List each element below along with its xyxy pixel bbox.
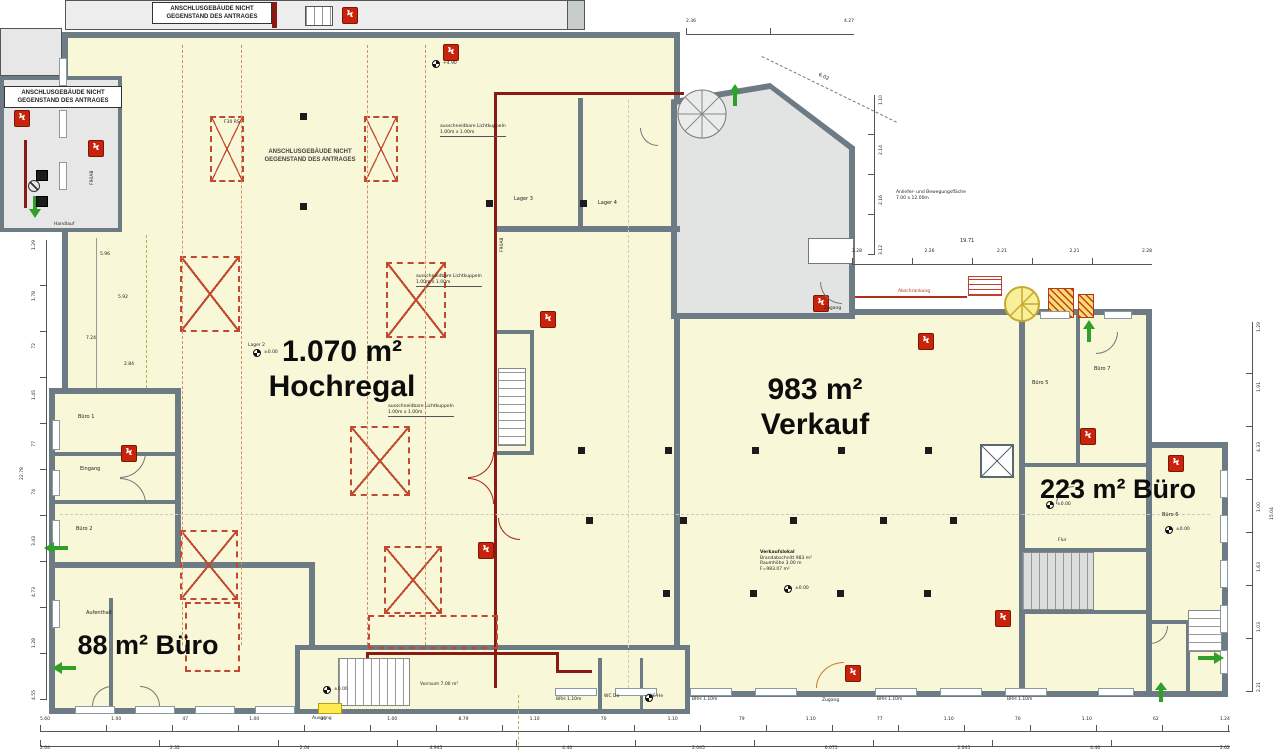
firewall-center-vertical xyxy=(494,92,497,688)
rack-guide-line xyxy=(241,45,242,645)
room-label-aufenthalt: Aufenthalt xyxy=(86,610,112,616)
column-marker xyxy=(880,517,887,524)
label-zugang: Zugang xyxy=(822,698,839,704)
dim-line xyxy=(852,258,1152,265)
wall-segment xyxy=(494,451,534,455)
label-zugang: Zugang xyxy=(824,306,841,312)
fire-extinguisher-icon: Ϟ xyxy=(540,311,556,328)
firewall-top-horizontal xyxy=(494,92,684,95)
dim-label: 1.00 xyxy=(1258,502,1263,512)
stairs-right-wing xyxy=(1022,552,1094,610)
wall-segment xyxy=(494,330,534,334)
exit-door-highlight xyxy=(318,703,342,714)
wc-room-topright xyxy=(808,238,854,264)
rack-outline xyxy=(384,546,442,614)
wall-segment xyxy=(640,658,643,710)
note-lichtkuppeln: ausschneidbare Lichtkuppeln 1.00m x 1.00… xyxy=(416,274,482,287)
rack-outline xyxy=(210,116,244,182)
dim-label: 1.63 xyxy=(1258,562,1263,572)
dim-line xyxy=(868,95,875,255)
room-label-wc1: WC Da xyxy=(604,694,619,700)
note-line: F=983.07 m² xyxy=(760,567,790,572)
exit-arrow-up-icon xyxy=(729,84,741,106)
annex-note-line2: GEGENSTAND DES ANTRAGES xyxy=(17,98,108,104)
firewall-left-segment xyxy=(24,140,27,208)
note-line: 7.00 x 12.00m xyxy=(896,196,929,201)
annex-note-line2: GEGENSTAND DES ANTRAGES xyxy=(264,157,355,163)
dim-label: 2.16 xyxy=(880,195,885,205)
window xyxy=(755,688,797,696)
dim-label: 5.92 xyxy=(118,295,128,301)
room-label-buero2: Büro 2 xyxy=(76,526,92,532)
spiral-stair-yellow-icon xyxy=(1002,284,1042,324)
label-brh: BRH 1.10m xyxy=(1007,697,1032,703)
dim-labels-right: 1.291.914.331.001.631.032.21 xyxy=(1255,322,1265,692)
window xyxy=(1005,688,1047,696)
label-hochregal-area: 1.070 m² xyxy=(269,334,416,369)
note-lichtkuppeln: ausschneidbare Lichtkuppeln 1.00m x 1.00… xyxy=(440,124,506,137)
fire-extinguisher-icon: Ϟ xyxy=(478,542,494,559)
stairs-bottom-right xyxy=(1188,610,1222,652)
dim-line xyxy=(686,28,854,35)
fire-extinguisher-icon: Ϟ xyxy=(1080,428,1096,445)
window xyxy=(1098,688,1134,696)
fire-extinguisher-icon: Ϟ xyxy=(845,665,861,682)
dim-label: 2.84 xyxy=(124,362,134,368)
column-marker xyxy=(578,447,585,454)
firewall-vorraum-h xyxy=(366,652,558,655)
hall-verkauf xyxy=(674,309,1025,697)
label-brh: BRH 1.10m xyxy=(556,697,581,703)
dim-label: 47 xyxy=(182,718,188,723)
desk-symbol xyxy=(36,196,48,207)
dim-label-slant: 6.02 xyxy=(817,72,830,83)
label-verkauf: 983 m² Verkauf xyxy=(761,372,869,443)
column-marker xyxy=(663,590,670,597)
rack-outline xyxy=(350,426,410,496)
dim-label: 70 xyxy=(601,718,607,723)
dim-labels-left: 1.291.78721.4577743.434.731.284.55 xyxy=(30,240,40,700)
wall-segment xyxy=(55,500,178,504)
window xyxy=(59,110,67,138)
dim-label: 2.045 xyxy=(692,747,705,752)
dim-label: 2.21 xyxy=(1258,682,1263,692)
window xyxy=(690,688,732,696)
wall-segment xyxy=(1019,463,1149,467)
rack-outline xyxy=(180,256,240,332)
dim-label: 1.78 xyxy=(33,291,38,301)
dim-label: 2.04 xyxy=(300,747,310,752)
dim-label: 72 xyxy=(33,343,38,349)
rack-outline xyxy=(180,530,238,600)
room-label-eingang: Eingang xyxy=(80,466,100,472)
dim-label: 1.10 xyxy=(1082,718,1092,723)
window xyxy=(195,706,235,714)
dim-label: 4.73 xyxy=(33,587,38,597)
column-marker xyxy=(680,517,687,524)
exit-arrow-up-icon xyxy=(1155,682,1167,702)
dim-line xyxy=(40,740,1230,747)
dim-line xyxy=(40,240,47,700)
dim-line xyxy=(96,238,97,388)
rack-guide-line xyxy=(182,45,183,645)
dim-label: 79 xyxy=(739,718,745,723)
dim-line xyxy=(40,725,1230,732)
note-line: Raumhöhe 3.00 m xyxy=(760,561,802,566)
exit-arrow-right-icon xyxy=(1198,652,1224,664)
dim-label: 2.04 xyxy=(40,747,50,752)
neighbour-room-topleft xyxy=(0,28,62,76)
dim-total-left: 22.78 xyxy=(20,467,26,480)
section-line xyxy=(146,235,147,388)
dim-label: 5.96 xyxy=(100,252,110,258)
dim-label: 1.29 xyxy=(1258,322,1263,332)
dim-label: 2.045 xyxy=(957,747,970,752)
wall-segment xyxy=(494,226,680,232)
dim-labels-trtop: 2.364.27 xyxy=(686,20,854,25)
label-firewall-class: F90AB xyxy=(500,238,506,252)
note-line: 1.00m x 1.00m xyxy=(388,410,422,415)
fire-extinguisher-icon: Ϟ xyxy=(443,44,459,61)
dim-line xyxy=(1246,322,1253,692)
room-label-buero1: Büro 1 xyxy=(78,414,94,420)
dim-label: 4.27 xyxy=(844,20,854,25)
dim-label: 2.32 xyxy=(170,747,180,752)
note-anlieferung: Anliefer- und Bewegungsfläche 7.00 x 12.… xyxy=(896,190,966,201)
column-marker xyxy=(486,200,493,207)
dim-label: 74 xyxy=(33,489,38,495)
level-marker xyxy=(253,349,261,357)
window xyxy=(59,162,67,190)
column-marker xyxy=(838,447,845,454)
dim-label: 3.12 xyxy=(880,245,885,255)
note-verkaufslokal: Verkaufslokal Brandabschnitt 983 m² Raum… xyxy=(760,550,812,573)
dim-label: 2.21 xyxy=(997,250,1007,255)
stairs-top-strip xyxy=(305,6,333,26)
barrier-line xyxy=(855,296,967,298)
label-firewall-class: F30 RS xyxy=(224,120,240,126)
label-verkauf-area: 983 m² xyxy=(761,372,869,407)
window xyxy=(59,58,67,86)
dim-label: 1.10 xyxy=(944,718,954,723)
annex-note-hall: ANSCHLUSGEBÄUDE NICHT GEGENSTAND DES ANT… xyxy=(258,148,362,164)
note-line: ausschneidbare Lichtkuppeln xyxy=(416,274,482,279)
level-marker xyxy=(323,686,331,694)
dim-label: 1.00 xyxy=(387,718,397,723)
note-line: 1.00m x 1.00m xyxy=(416,280,450,285)
window xyxy=(52,600,60,628)
column-marker xyxy=(750,590,757,597)
room-label-vorraum: Vorraum 7.00 m² xyxy=(420,682,458,688)
annex-note-line1: ANSCHLUSGEBÄUDE NICHT xyxy=(170,6,253,12)
note-lichtkuppeln: ausschneidbare Lichtkuppeln 1.00m x 1.00… xyxy=(388,404,454,417)
dim-labels-topright: 2.282.262.212.212.28 xyxy=(852,250,1152,255)
label-hochregal-name: Hochregal xyxy=(269,369,416,404)
window xyxy=(1220,605,1228,633)
column-marker xyxy=(586,517,593,524)
wall-segment xyxy=(598,658,602,710)
rack-outline xyxy=(368,615,498,649)
column-marker xyxy=(665,447,672,454)
room-label-lager2: Lager 2 xyxy=(248,343,265,349)
dim-label: 1.10 xyxy=(806,718,816,723)
dim-label: 8.79 xyxy=(458,718,468,723)
window xyxy=(1220,515,1228,543)
level-marker xyxy=(1046,501,1054,509)
dim-label: 1.03 xyxy=(1258,622,1263,632)
dim-label: 3.43 xyxy=(33,536,38,546)
dim-total-right: 15.04 xyxy=(1270,507,1276,520)
dim-label: 4.46 xyxy=(1090,747,1100,752)
grid-line xyxy=(628,100,629,688)
note-line: 1.00m x 1.00m xyxy=(440,130,474,135)
dim-label: 1.24 xyxy=(1220,718,1230,723)
window xyxy=(875,688,917,696)
dim-label: 6.075 xyxy=(825,747,838,752)
dim-label: 2.36 xyxy=(686,20,696,25)
exit-arrow-up-icon xyxy=(1083,320,1095,342)
dim-label: 05 xyxy=(320,718,326,723)
fire-extinguisher-icon: Ϟ xyxy=(918,333,934,350)
level-label: ±0.00 xyxy=(795,586,809,592)
dim-labels-bottom-1: 5.601.00471.00051.008.791.10701.10791.10… xyxy=(40,718,1230,723)
label-brh: BRH 1.10m xyxy=(692,697,717,703)
dim-label: 1.45 xyxy=(33,390,38,400)
dim-label: 1.29 xyxy=(33,240,38,250)
dim-label: 4.55 xyxy=(33,690,38,700)
annex-note-left: ANSCHLUSGEBÄUDE NICHT GEGENSTAND DES ANT… xyxy=(4,86,122,108)
label-firewall-class: F90AB xyxy=(90,171,96,185)
dim-label: 2.14 xyxy=(880,145,885,155)
fire-extinguisher-icon: Ϟ xyxy=(88,140,104,157)
dim-label: 77 xyxy=(33,441,38,447)
window xyxy=(1104,311,1132,319)
wall-segment xyxy=(1019,610,1149,614)
level-label: ±0.00 xyxy=(1057,502,1071,508)
exterior-hatch-area xyxy=(1078,294,1094,318)
window xyxy=(75,706,115,714)
firewall-vorraum-h2 xyxy=(556,670,592,673)
dim-total-topright: 19.71 xyxy=(960,238,974,244)
note-line: Anliefer- und Bewegungsfläche xyxy=(896,190,966,195)
note-line: Verkaufslokal xyxy=(760,550,795,555)
label-handlauf: Handlauf xyxy=(54,222,74,228)
dim-label: 1.10 xyxy=(668,718,678,723)
dim-label: 70 xyxy=(1015,718,1021,723)
level-marker xyxy=(432,60,440,68)
level-label: ±0.00 xyxy=(1176,527,1190,533)
room-label-flur: Flur xyxy=(1058,538,1067,544)
window xyxy=(1220,470,1228,498)
dim-label: 4.40 xyxy=(562,747,572,752)
room-label-lager4: Lager 4 xyxy=(598,200,617,206)
dim-label: 4.33 xyxy=(1258,442,1263,452)
window xyxy=(255,706,295,714)
column-marker xyxy=(752,447,759,454)
level-marker xyxy=(1165,526,1173,534)
desk-symbol xyxy=(36,170,48,181)
room-label-buero6: Büro 6 xyxy=(1162,512,1178,518)
column-marker xyxy=(837,590,844,597)
grid-line xyxy=(60,514,1210,515)
column-marker xyxy=(580,200,587,207)
fire-extinguisher-icon: Ϟ xyxy=(342,7,358,24)
label-hochregal: 1.070 m² Hochregal xyxy=(269,334,416,405)
rack-outline xyxy=(364,116,398,182)
wall-segment xyxy=(578,98,583,230)
dim-label: 1.10 xyxy=(880,95,885,105)
column-marker xyxy=(950,517,957,524)
column-marker xyxy=(300,113,307,120)
room-label-lager3: Lager 3 xyxy=(514,196,533,202)
floor-plan-canvas: ANSCHLUSGEBÄUDE NICHT GEGENSTAND DES ANT… xyxy=(0,0,1280,753)
dim-label: 1.28 xyxy=(33,638,38,648)
dim-label: 2.21 xyxy=(1069,250,1079,255)
window xyxy=(555,688,597,696)
dim-label: 62 xyxy=(1153,718,1159,723)
window xyxy=(135,706,175,714)
fire-extinguisher-icon: Ϟ xyxy=(995,610,1011,627)
firewall-top-strip-bar xyxy=(272,2,277,28)
dim-label: 4.945 xyxy=(429,747,442,752)
exit-arrow-left-icon xyxy=(44,542,68,554)
fire-extinguisher-icon: Ϟ xyxy=(14,110,30,127)
dim-label: 2.26 xyxy=(924,250,934,255)
level-label: ±0.00 xyxy=(264,350,278,356)
wall-segment xyxy=(530,330,534,455)
dim-labels-bottom-2: 2.042.322.044.9454.402.0456.0752.0454.46… xyxy=(40,747,1230,752)
note-line: Brandabschnitt 983 m² xyxy=(760,556,812,561)
dim-label: 1.00 xyxy=(249,718,259,723)
level-marker xyxy=(784,585,792,593)
exit-arrow-left-icon xyxy=(52,662,76,674)
dim-label: 2.62 xyxy=(1220,747,1230,752)
dim-label: 5.60 xyxy=(40,718,50,723)
window xyxy=(52,420,60,450)
stairs-central-corridor xyxy=(498,368,526,446)
column-marker xyxy=(924,590,931,597)
top-strip-pillar xyxy=(567,0,585,30)
window xyxy=(1040,311,1070,319)
room-label-buero7: Büro 7 xyxy=(1094,366,1110,372)
annex-note-top: ANSCHLUSGEBÄUDE NICHT GEGENSTAND DES ANT… xyxy=(152,2,272,24)
dim-label: 7.24 xyxy=(86,336,96,342)
elevator xyxy=(980,444,1014,478)
barrier-label: Abschrankung xyxy=(898,289,930,295)
room-label-buero5: Büro 5 xyxy=(1032,380,1048,386)
note-line: ausschneidbare Lichtkuppeln xyxy=(440,124,506,129)
label-brh: BRH 1.10m xyxy=(877,697,902,703)
dim-label: 77 xyxy=(877,718,883,723)
level-label: ±0.00 xyxy=(334,687,348,693)
dim-label: 2.28 xyxy=(1142,250,1152,255)
dim-label: 1.10 xyxy=(530,718,540,723)
exterior-ramp xyxy=(968,276,1002,296)
note-line: ausschneidbare Lichtkuppeln xyxy=(388,404,454,409)
dim-label: 1.00 xyxy=(111,718,121,723)
column-marker xyxy=(925,447,932,454)
stairs-bottom-left xyxy=(338,658,410,706)
rack-guide-line xyxy=(425,45,426,645)
wall-segment xyxy=(55,452,178,456)
level-marker xyxy=(645,694,653,702)
dim-label: 2.28 xyxy=(852,250,862,255)
column-marker xyxy=(790,517,797,524)
window xyxy=(1220,560,1228,588)
window xyxy=(940,688,982,696)
prohibition-icon xyxy=(28,180,40,192)
fire-extinguisher-icon: Ϟ xyxy=(1168,455,1184,472)
label-buero-88: 88 m² Büro xyxy=(77,630,218,662)
firewall-vorraum-v2 xyxy=(556,652,559,672)
spiral-stair-icon xyxy=(676,88,728,140)
window xyxy=(52,470,60,496)
label-verkauf-name: Verkauf xyxy=(761,407,869,442)
column-marker xyxy=(300,203,307,210)
level-label: +4.90 xyxy=(443,61,457,67)
dim-labels-trv: 1.102.142.163.12 xyxy=(877,95,887,255)
dim-label: 1.91 xyxy=(1258,382,1263,392)
annex-note-line2: GEGENSTAND DES ANTRAGES xyxy=(166,14,257,20)
annex-note-line1: ANSCHLUSGEBÄUDE NICHT xyxy=(268,149,351,155)
annex-note-line1: ANSCHLUSGEBÄUDE NICHT xyxy=(21,90,104,96)
